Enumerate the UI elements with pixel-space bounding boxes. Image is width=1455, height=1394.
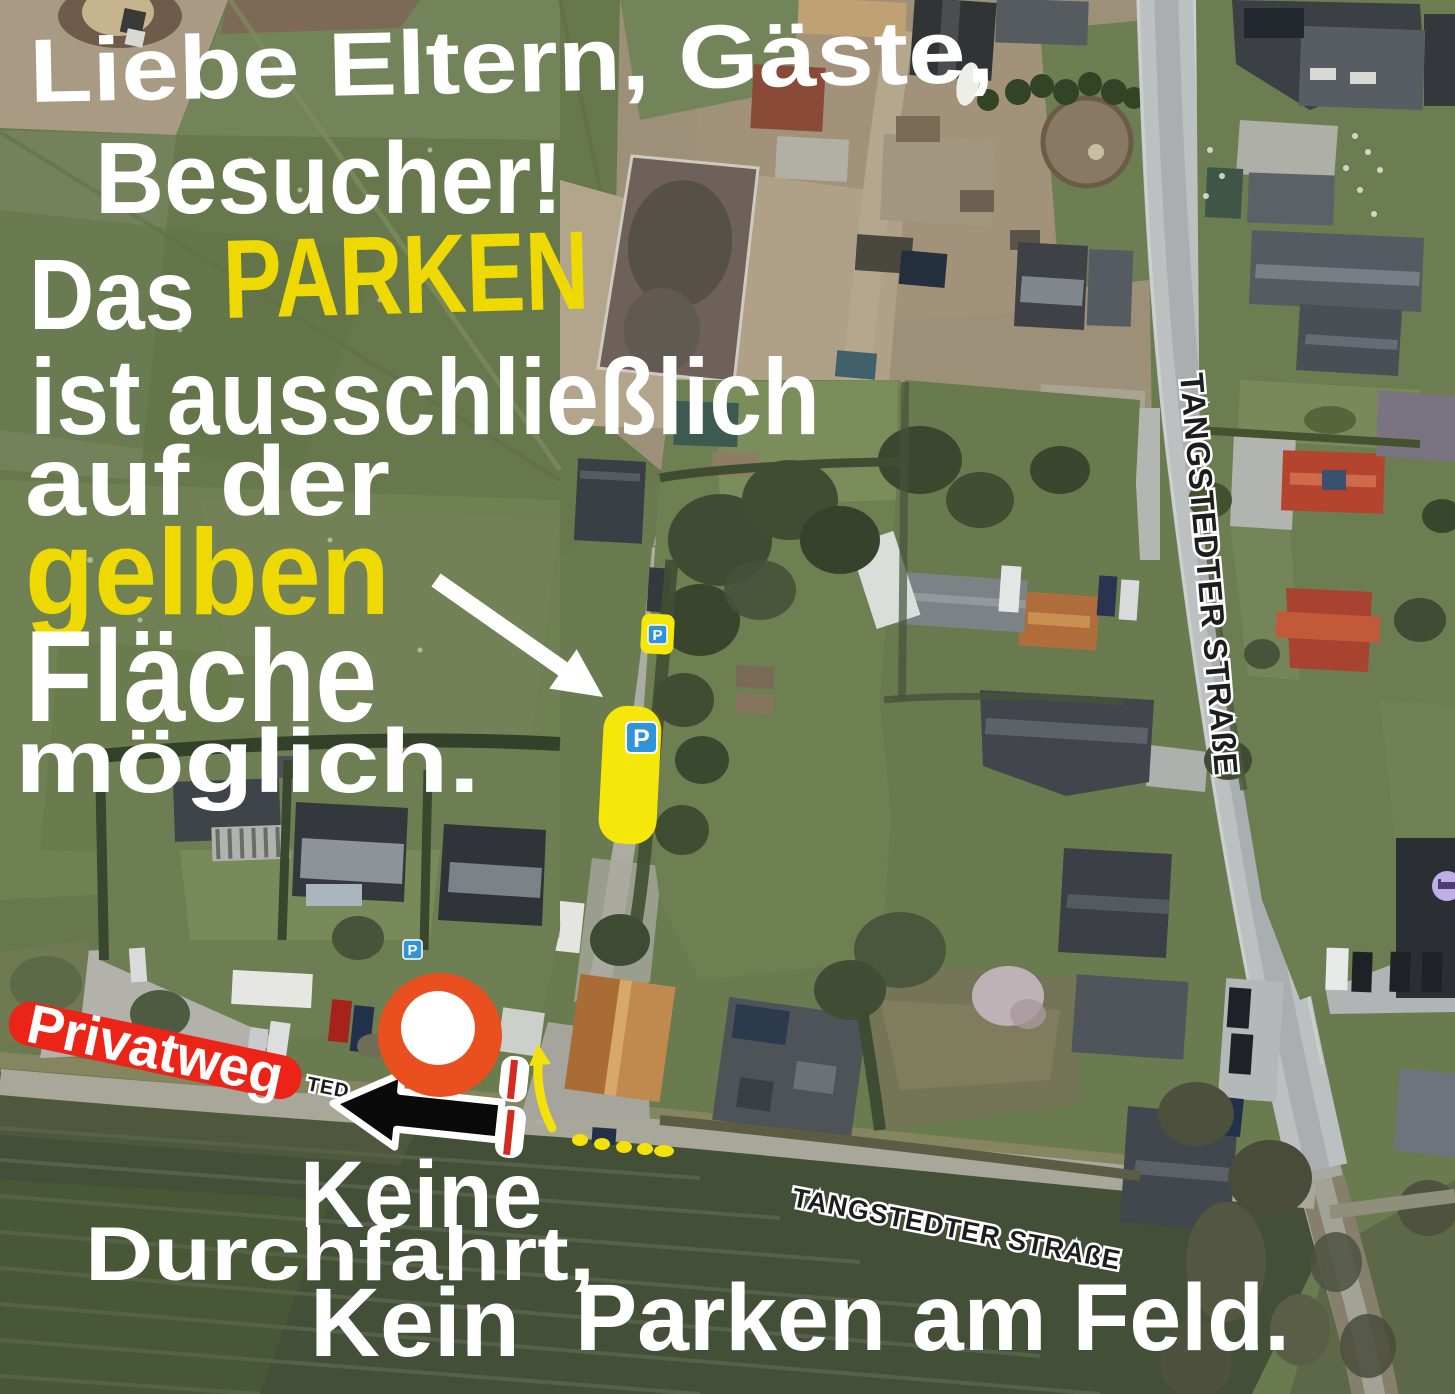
svg-text:P: P	[633, 725, 650, 753]
svg-text:Parken am Feld.: Parken am Feld.	[575, 1265, 1290, 1371]
svg-text:P: P	[407, 942, 417, 959]
svg-text:möglich.: möglich.	[15, 712, 480, 812]
svg-text:P: P	[652, 627, 662, 644]
svg-text:Liebe Eltern, Gäste,: Liebe Eltern, Gäste,	[28, 2, 995, 122]
svg-text:Das: Das	[29, 239, 195, 351]
svg-text:Kein: Kein	[310, 1268, 520, 1377]
svg-text:PARKEN: PARKEN	[221, 207, 590, 342]
